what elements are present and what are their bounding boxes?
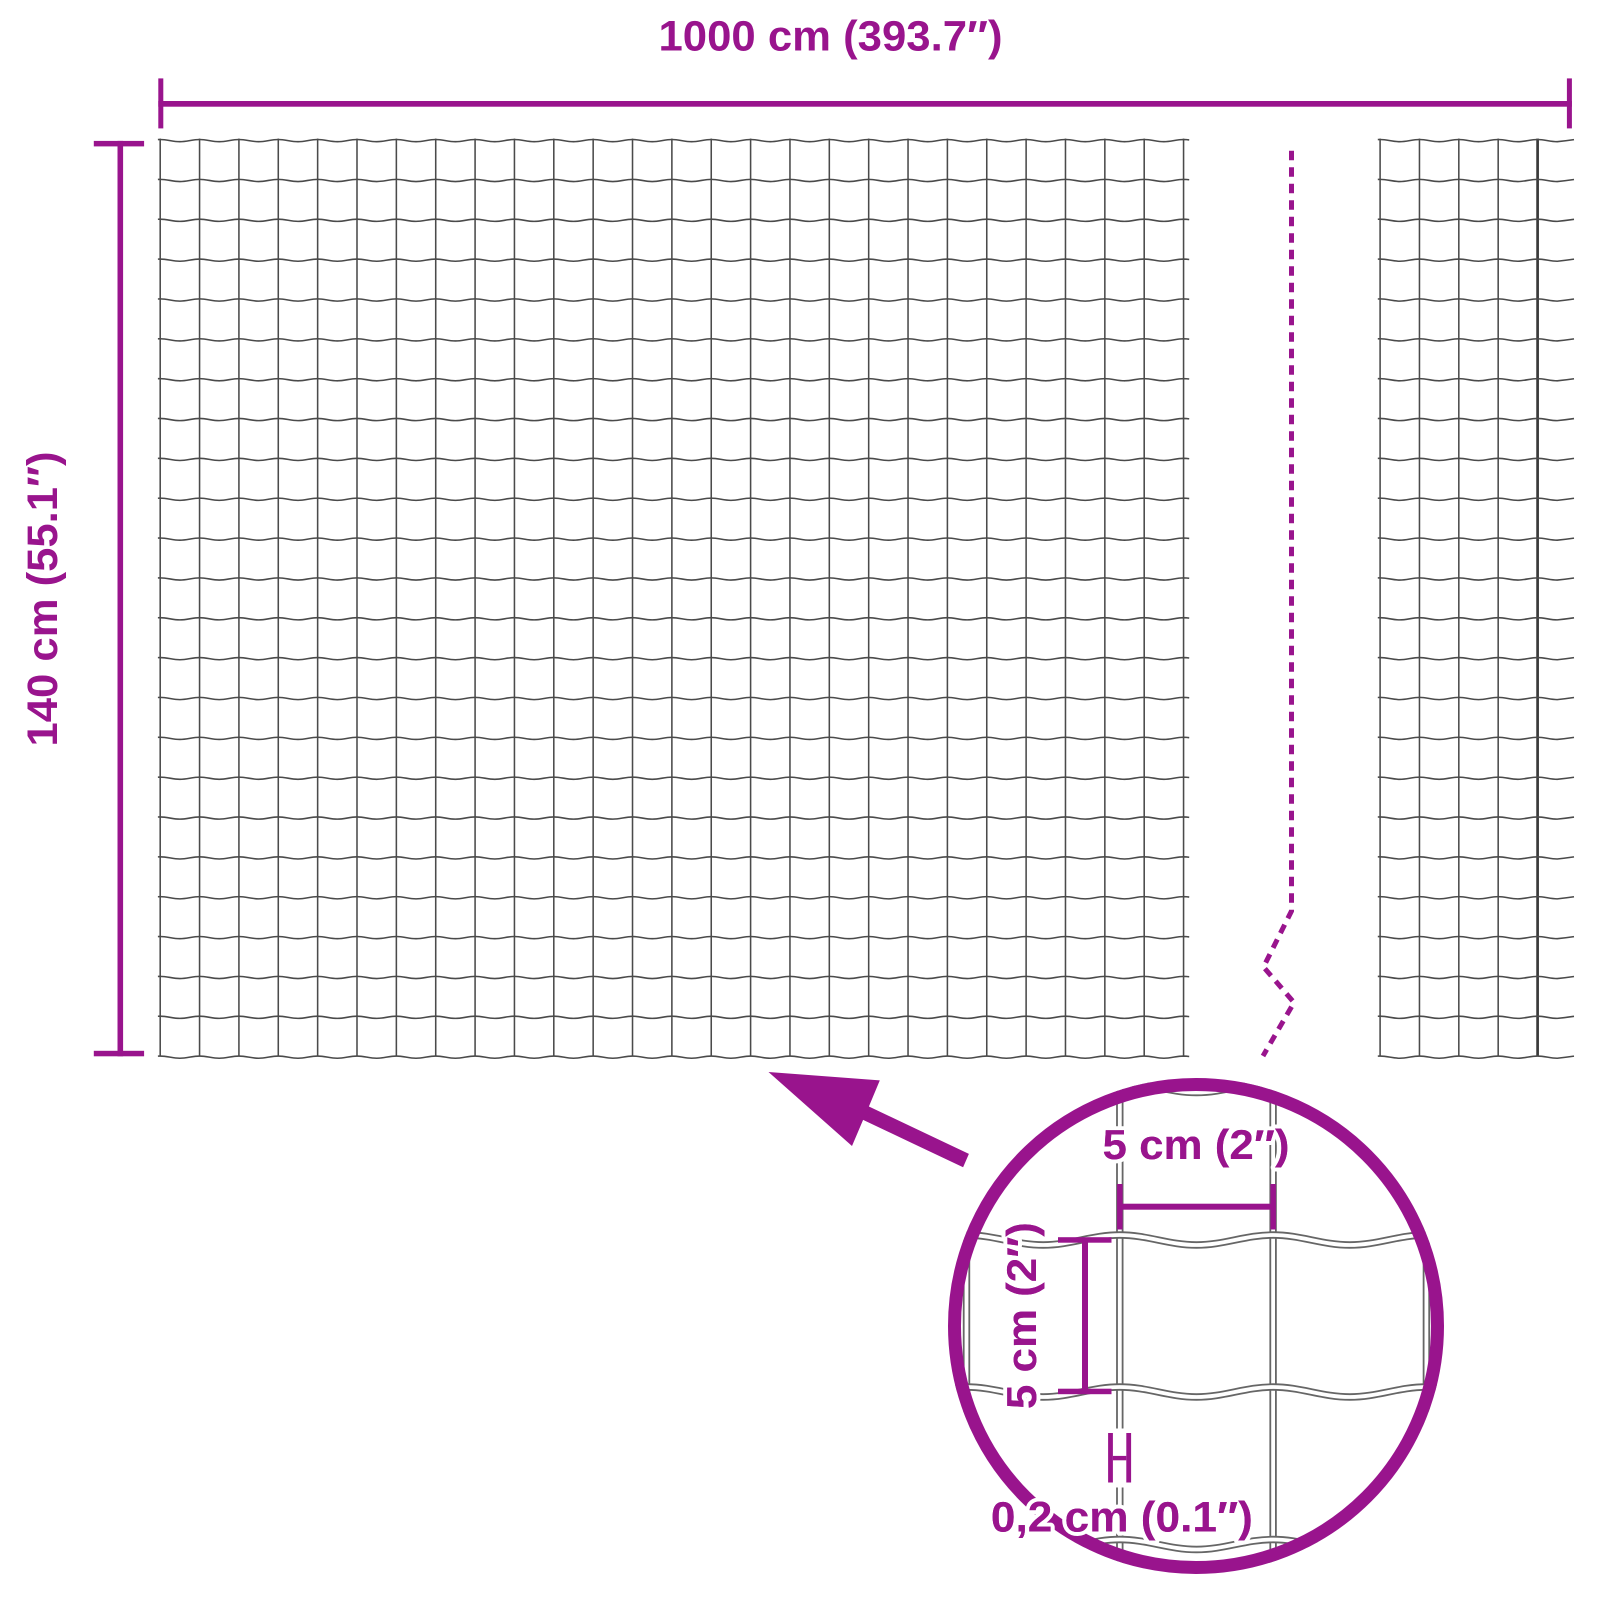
svg-text:140 cm (55.1″): 140 cm (55.1″) <box>19 452 67 747</box>
svg-text:5 cm (2″): 5 cm (2″) <box>1103 1121 1290 1168</box>
svg-text:5 cm (2″): 5 cm (2″) <box>998 1222 1045 1409</box>
svg-text:1000 cm (393.7″): 1000 cm (393.7″) <box>659 13 1003 61</box>
svg-text:0,2 cm (0.1″): 0,2 cm (0.1″) <box>991 1494 1253 1542</box>
